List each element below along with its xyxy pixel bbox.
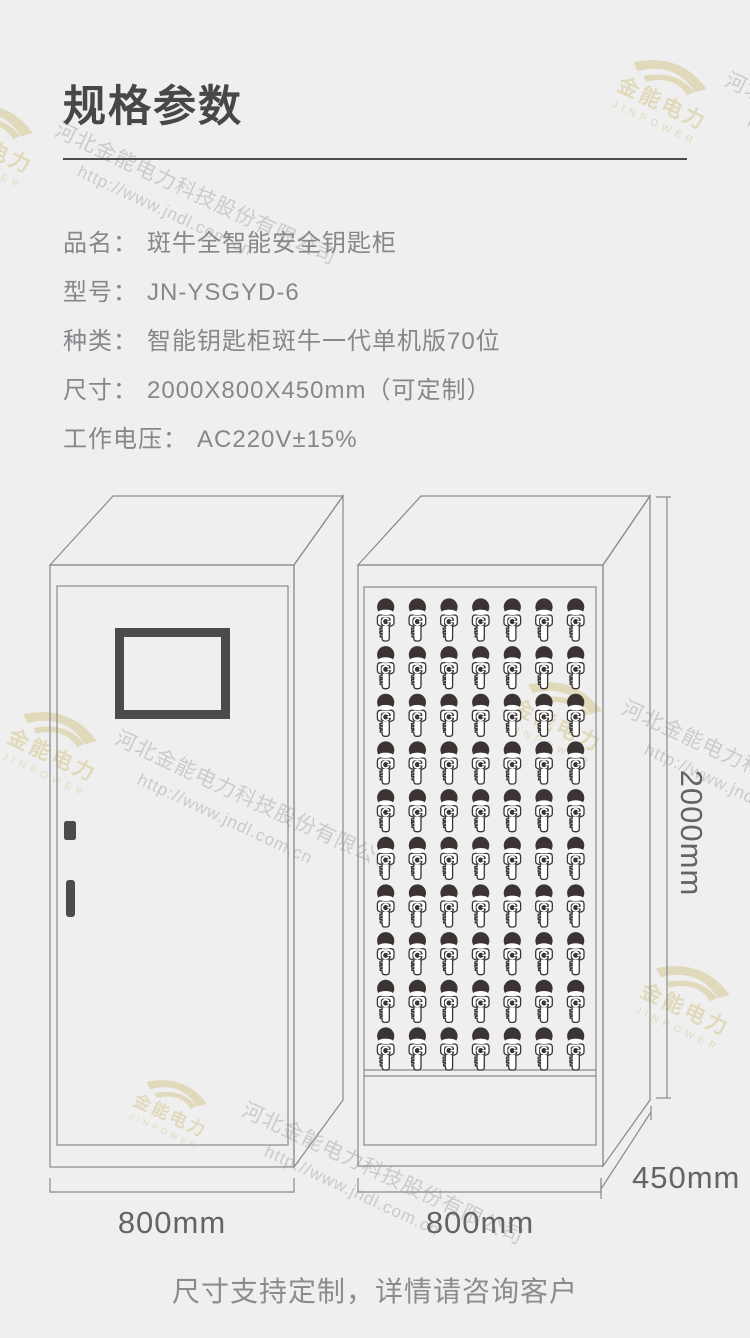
key-icon — [472, 789, 489, 832]
spec-label: 品名： — [63, 230, 138, 257]
key-grid — [377, 598, 584, 1070]
spec-row-voltage: 工作电压：AC220V±15% — [63, 427, 501, 452]
page-title: 规格参数 — [63, 82, 243, 132]
spec-row-model: 型号：JN-YSGYD-6 — [63, 280, 501, 305]
key-icon — [440, 1027, 457, 1070]
key-icon — [472, 598, 489, 641]
key-icon — [535, 598, 552, 641]
door-lock — [64, 821, 76, 840]
spec-label: 型号： — [63, 279, 138, 306]
key-icon — [567, 741, 584, 784]
key-icon — [567, 932, 584, 975]
spec-label: 种类： — [63, 328, 138, 355]
key-icon — [409, 884, 426, 927]
key-icon — [472, 884, 489, 927]
key-icon — [567, 837, 584, 880]
right-cabinet-side-face — [603, 496, 650, 1166]
footer-note: 尺寸支持定制，详情请咨询客户 — [0, 1270, 750, 1310]
height-label: 2000mm — [674, 770, 709, 897]
key-icon — [377, 646, 394, 689]
left-width-label: 800mm — [118, 1205, 226, 1240]
spec-label: 尺寸： — [63, 377, 138, 404]
key-icon — [409, 980, 426, 1023]
key-icon — [409, 741, 426, 784]
key-icon — [567, 598, 584, 641]
spec-sheet-page: 金能电力 JINPOWER 河北金能电力科技股份有限公司 http://www.… — [0, 0, 750, 1338]
key-icon — [535, 694, 552, 737]
key-icon — [504, 646, 521, 689]
key-icon — [440, 837, 457, 880]
display-screen — [115, 628, 230, 719]
key-icon — [409, 598, 426, 641]
key-icon — [472, 741, 489, 784]
key-icon — [504, 694, 521, 737]
key-icon — [567, 694, 584, 737]
key-icon — [535, 980, 552, 1023]
key-icon — [504, 1027, 521, 1070]
key-icon — [377, 598, 394, 641]
spec-value: 2000X800X450mm（可定制） — [147, 377, 491, 404]
spec-row-size: 尺寸：2000X800X450mm（可定制） — [63, 378, 501, 403]
key-icon — [440, 884, 457, 927]
key-icon — [535, 646, 552, 689]
spec-value: AC220V±15% — [197, 426, 358, 453]
spec-list: 品名：斑牛全智能安全钥匙柜 型号：JN-YSGYD-6 种类：智能钥匙柜斑牛一代… — [63, 231, 501, 476]
key-icon — [440, 789, 457, 832]
key-icon — [377, 1027, 394, 1070]
key-icon — [567, 789, 584, 832]
key-icon — [535, 837, 552, 880]
key-icon — [409, 1027, 426, 1070]
key-icon — [567, 1027, 584, 1070]
key-icon — [377, 837, 394, 880]
right-width-bracket — [358, 1178, 601, 1192]
key-icon — [504, 884, 521, 927]
key-icon — [535, 884, 552, 927]
spec-value: 智能钥匙柜斑牛一代单机版70位 — [147, 328, 501, 355]
key-icon — [377, 741, 394, 784]
key-icon — [409, 694, 426, 737]
left-width-bracket — [50, 1178, 294, 1192]
right-cabinet-top-face — [358, 496, 650, 565]
key-icon — [440, 646, 457, 689]
key-icon — [504, 837, 521, 880]
title-underline — [63, 158, 687, 160]
key-icon — [440, 980, 457, 1023]
key-icon — [409, 789, 426, 832]
key-icon — [472, 694, 489, 737]
key-icon — [472, 837, 489, 880]
depth-label: 450mm — [632, 1160, 740, 1195]
key-icon — [409, 932, 426, 975]
spec-label: 工作电压： — [63, 426, 188, 453]
right-width-label: 800mm — [426, 1205, 534, 1240]
height-dimension-line — [656, 497, 671, 1098]
key-icon — [377, 980, 394, 1023]
key-icon — [409, 837, 426, 880]
key-icon — [377, 932, 394, 975]
left-cabinet-side-face — [294, 496, 343, 1167]
key-icon — [535, 1027, 552, 1070]
spec-row-product-name: 品名：斑牛全智能安全钥匙柜 — [63, 231, 501, 256]
key-icon — [535, 932, 552, 975]
key-icon — [377, 884, 394, 927]
content: 规格参数 品名：斑牛全智能安全钥匙柜 型号：JN-YSGYD-6 种类：智能钥匙… — [0, 0, 750, 1338]
key-icon — [377, 694, 394, 737]
door-handle — [66, 880, 75, 917]
left-cabinet-top-face — [50, 496, 343, 565]
key-icon — [504, 980, 521, 1023]
key-icon — [504, 789, 521, 832]
key-icon — [440, 741, 457, 784]
key-icon — [567, 646, 584, 689]
cabinet-diagram: 800mm 800mm 2000mm 450mm — [0, 480, 750, 1240]
key-icon — [472, 646, 489, 689]
key-icon — [440, 598, 457, 641]
key-icon — [567, 980, 584, 1023]
spec-row-type: 种类：智能钥匙柜斑牛一代单机版70位 — [63, 329, 501, 354]
key-icon — [504, 741, 521, 784]
key-icon — [504, 932, 521, 975]
dimension-annotations: 800mm 800mm 2000mm 450mm — [50, 497, 740, 1240]
key-icon — [567, 884, 584, 927]
key-icon — [504, 598, 521, 641]
spec-value: 斑牛全智能安全钥匙柜 — [147, 230, 397, 257]
key-icon — [535, 789, 552, 832]
key-icon — [409, 646, 426, 689]
key-icon — [535, 741, 552, 784]
key-icon — [472, 932, 489, 975]
spec-value: JN-YSGYD-6 — [147, 279, 300, 306]
key-icon — [440, 932, 457, 975]
key-icon — [377, 789, 394, 832]
key-icon — [472, 1027, 489, 1070]
key-icon — [440, 694, 457, 737]
right-cabinet — [358, 496, 650, 1166]
left-cabinet — [50, 496, 343, 1167]
key-icon — [472, 980, 489, 1023]
